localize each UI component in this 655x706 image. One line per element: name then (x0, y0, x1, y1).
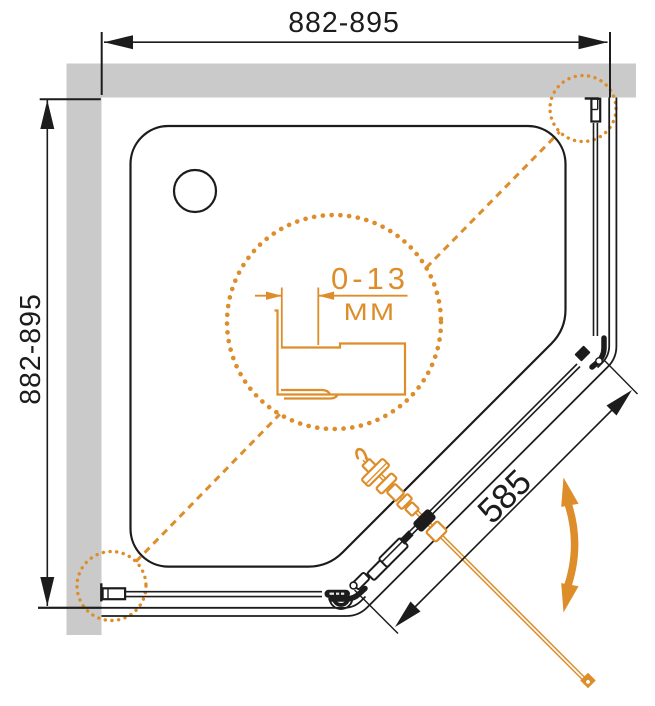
svg-text:882-895: 882-895 (15, 293, 47, 405)
svg-text:0-13: 0-13 (331, 261, 409, 296)
svg-text:882-895: 882-895 (288, 7, 400, 39)
svg-text:ММ: ММ (344, 298, 397, 325)
